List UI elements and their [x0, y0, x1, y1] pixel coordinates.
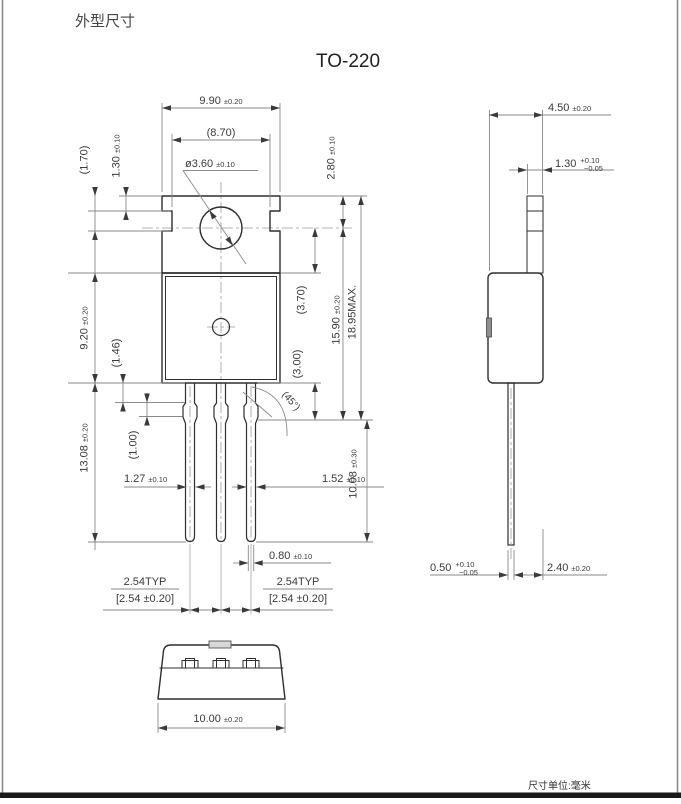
dim-lead-width-right: 1.52±0.10: [232, 473, 384, 490]
dim-tab-thickness: 1.30+0.10−0.05: [509, 156, 614, 194]
bottom-pin-1: [182, 659, 198, 669]
dim-label-1000: 10.00±0.20: [193, 713, 242, 725]
page-title: 外型尺寸: [75, 13, 135, 30]
pitch-left-bottom: [2.54 ±0.20]: [116, 593, 174, 605]
svg-text:ø3.60±0.10: ø3.60±0.10: [185, 158, 235, 170]
dim-label-370: (3.70): [296, 286, 308, 315]
dim-label-130: 1.30±0.10: [111, 134, 123, 177]
bottom-outline: [158, 645, 285, 699]
dim-label-920: 9.20±0.20: [79, 306, 91, 349]
dim-label-100: (1.00): [128, 431, 140, 460]
dim-label-300: (3.00): [292, 350, 304, 379]
dim-label-1895: 18.95MAX.: [347, 285, 359, 339]
dim-hole-diameter: ø3.60±0.10: [183, 158, 258, 264]
dim-label-280: 2.80±0.10: [326, 136, 338, 179]
svg-text:9.90±0.20: 9.90±0.20: [199, 95, 242, 107]
dim-max-height: 18.95MAX.: [347, 196, 364, 420]
dim-label-050: 0.50+0.10−0.05: [430, 560, 478, 577]
dim-label-1008: 10.08±0.30: [348, 449, 360, 498]
bottom-pin-2: [213, 659, 229, 669]
dim-label-127: 1.27±0.10: [124, 473, 167, 485]
side-body-notch: [487, 318, 492, 337]
dim-tab-step: 1.30±0.10: [111, 134, 129, 220]
dim-label-080: 0.80±0.10: [269, 550, 312, 562]
page-border: [0, 0, 681, 798]
dim-bottom-width: 10.00±0.20: [158, 703, 285, 733]
side-tab: [527, 196, 543, 273]
bottom-pin-3: [243, 659, 259, 669]
pitch-left-top: 2.54TYP: [124, 576, 167, 588]
dim-lead-stub: (1.46): [111, 339, 126, 412]
bottom-index-notch: [209, 641, 231, 648]
dim-label-152: 1.52±0.10: [322, 473, 365, 485]
front-view: 9.90±0.20 (8.70) ø3.60±0.10: [68, 95, 384, 614]
dim-chamfer-angle: (45°): [243, 387, 302, 436]
dim-side-lead: 0.50+0.10−0.05 2.40±0.20: [430, 529, 607, 580]
dim-side-depth: 4.50±0.20: [489, 102, 611, 271]
dim-label-146: (1.46): [111, 339, 123, 368]
unit-note: 尺寸单位:毫米: [528, 779, 591, 792]
dim-label-450: 4.50±0.20: [548, 102, 591, 114]
dim-lead-pitch: 2.54TYP [2.54 ±0.20] 2.54TYP [2.54 ±0.20…: [103, 576, 333, 613]
pitch-right-top: 2.54TYP: [277, 576, 320, 588]
bottom-view: 10.00±0.20: [158, 641, 285, 733]
dim-label-1590: 15.90±0.20: [331, 295, 343, 344]
dim-lead-width-left: 1.27±0.10: [124, 473, 211, 490]
svg-text:(8.70): (8.70): [207, 127, 236, 139]
dim-left-chain: (1.70) 9.20±0.20 13.08±0.20: [79, 146, 98, 550]
dim-label-1308: 13.08±0.20: [79, 423, 91, 472]
datasheet-page: 外型尺寸 TO-220 9.90±0.20: [0, 0, 681, 799]
pitch-right-bottom: [2.54 ±0.20]: [269, 593, 327, 605]
dim-label-170: (1.70): [79, 146, 91, 175]
side-body: [488, 273, 543, 383]
dim-lead-shoulder: (1.00): [128, 393, 150, 459]
outline-drawing: 外型尺寸 TO-220 9.90±0.20: [0, 0, 681, 799]
dim-right-mid-chain: 2.80±0.10 15.90±0.20: [326, 136, 346, 420]
dim-right-inner-chain: (3.70) (3.00): [292, 228, 318, 420]
package-name: TO-220: [316, 51, 380, 72]
dim-overall-width: 9.90±0.20: [162, 95, 280, 192]
side-view: 4.50±0.20 1.30+0.10−0.05 0.50+0.10−0.05 …: [430, 102, 614, 580]
dim-label-240: 2.40±0.20: [547, 562, 590, 574]
dim-lead-thickness: 0.80±0.10: [233, 545, 331, 571]
